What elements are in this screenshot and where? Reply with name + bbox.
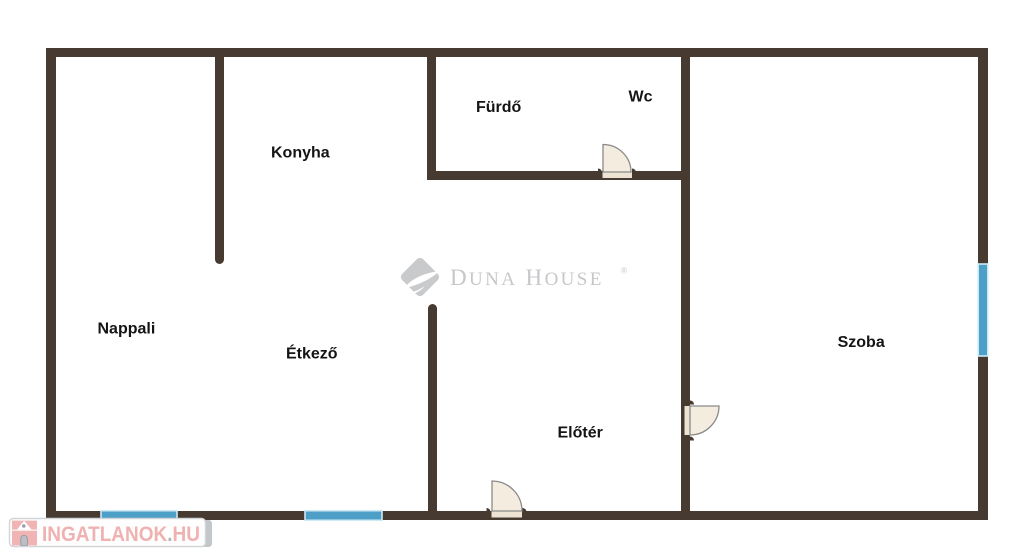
svg-text:Fürdő: Fürdő (476, 99, 522, 116)
svg-text:DUNA HOUSE: DUNA HOUSE (450, 265, 604, 290)
svg-text:Szoba: Szoba (838, 334, 885, 351)
svg-text:INGATLANOK.HU: INGATLANOK.HU (42, 522, 200, 546)
svg-text:Nappali: Nappali (98, 321, 156, 338)
svg-text:Előtér: Előtér (558, 425, 603, 442)
svg-text:Wc: Wc (629, 89, 653, 106)
svg-text:®: ® (621, 266, 628, 276)
svg-text:Étkező: Étkező (286, 344, 338, 363)
svg-text:Konyha: Konyha (271, 144, 330, 161)
